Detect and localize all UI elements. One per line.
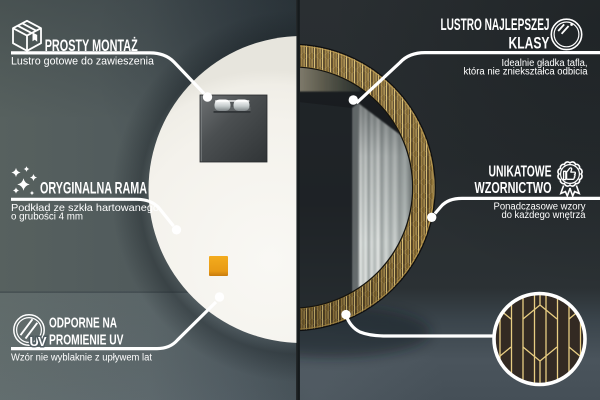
svg-text:WZORNICTWO: WZORNICTWO: [475, 180, 552, 197]
svg-text:PROSTY MONTAŻ: PROSTY MONTAŻ: [45, 36, 138, 55]
svg-text:która nie zniekształca odbicia: która nie zniekształca odbicia: [464, 66, 588, 77]
svg-text:Lustro gotowe do zawieszenia: Lustro gotowe do zawieszenia: [11, 56, 154, 68]
svg-text:UV: UV: [30, 334, 47, 349]
svg-text:ODPORNE NA: ODPORNE NA: [49, 315, 117, 331]
svg-text:UNIKATOWE: UNIKATOWE: [489, 163, 552, 180]
svg-text:o grubości 4 mm: o grubości 4 mm: [11, 212, 83, 223]
svg-text:Wzór nie wyblaknie z upływem l: Wzór nie wyblaknie z upływem lat: [11, 353, 152, 364]
svg-text:ORYGINALNA RAMA: ORYGINALNA RAMA: [40, 180, 147, 198]
svg-text:LUSTRO NAJLEPSZEJ: LUSTRO NAJLEPSZEJ: [441, 15, 550, 34]
svg-text:PROMIENIE UV: PROMIENIE UV: [49, 332, 124, 348]
svg-text:KLASY: KLASY: [509, 34, 550, 53]
svg-text:do każdego wnętrza: do każdego wnętrza: [502, 210, 586, 221]
